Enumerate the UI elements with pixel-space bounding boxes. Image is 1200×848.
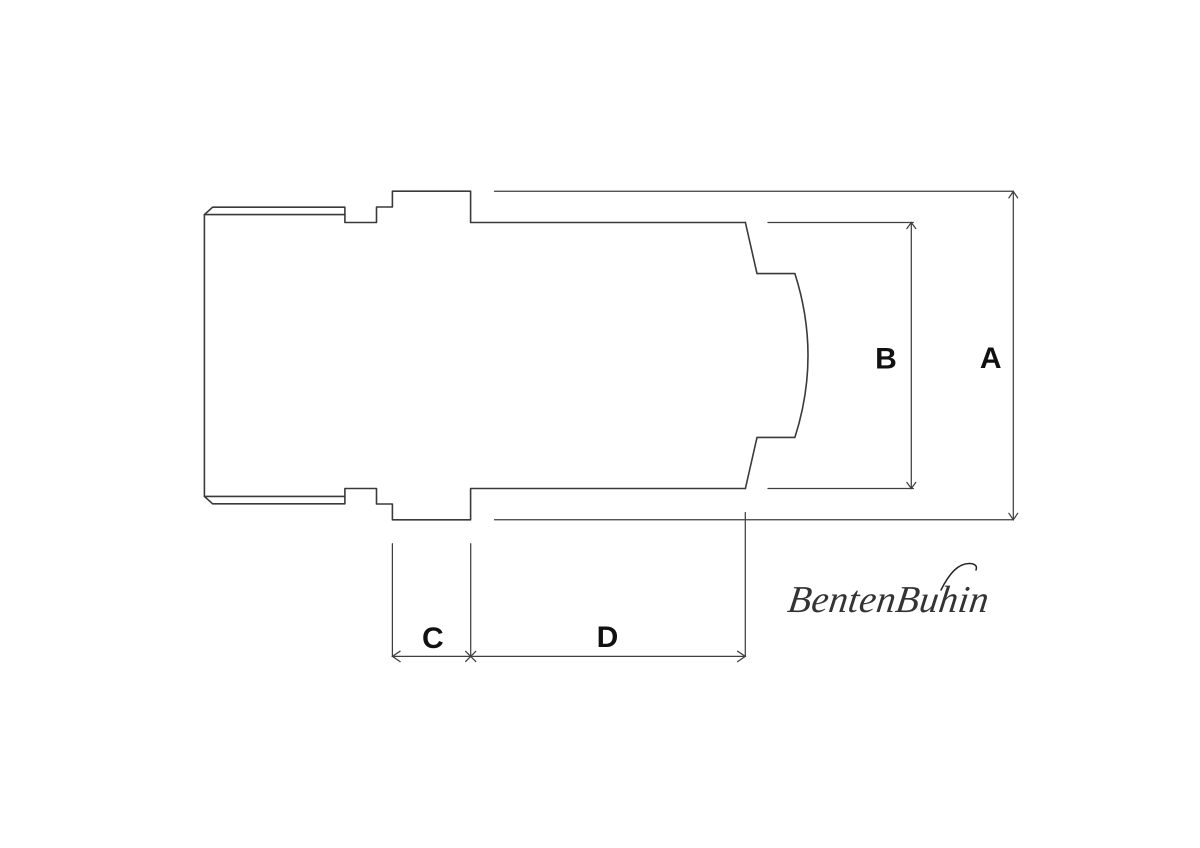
svg-text:A: A — [980, 342, 1002, 375]
svg-text:C: C — [422, 622, 444, 655]
svg-text:B: B — [875, 343, 897, 376]
svg-text:BentenBuhin: BentenBuhin — [785, 579, 991, 621]
svg-text:D: D — [597, 621, 619, 654]
